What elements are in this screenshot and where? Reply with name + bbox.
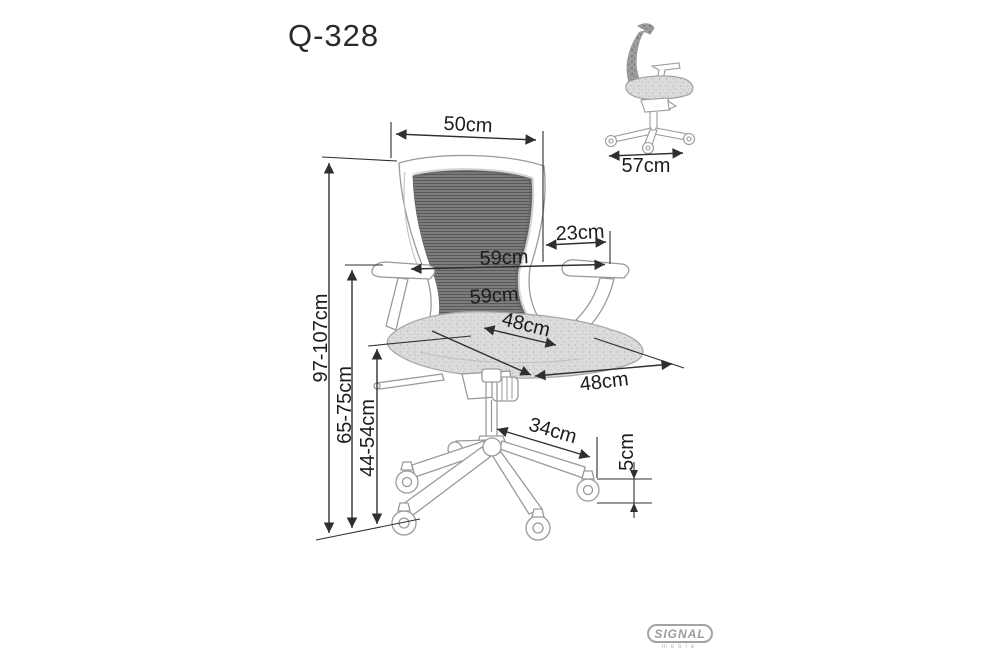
base-casters xyxy=(392,438,599,540)
label-caster-height: 5cm xyxy=(616,433,638,471)
label-total-height: 97-107cm xyxy=(310,294,332,383)
label-backrest-width: 50cm xyxy=(443,113,493,138)
diagram-canvas: Q-328 xyxy=(0,0,1000,666)
label-overall-width: 59cm xyxy=(479,246,529,270)
tilt-lever xyxy=(374,374,444,389)
label-seat-depth: 48cm xyxy=(579,368,630,396)
main-chair-drawing xyxy=(372,155,643,540)
side-seat xyxy=(626,76,693,99)
side-view-drawing xyxy=(606,24,695,154)
label-seat-height: 44-54cm xyxy=(357,399,379,477)
label-side-depth: 57cm xyxy=(622,155,671,177)
brand-logo-subtext: meble xyxy=(645,644,715,650)
label-armrest-depth: 23cm xyxy=(555,221,605,246)
right-armrest xyxy=(562,260,629,326)
brand-logo: SIGNAL meble xyxy=(645,624,715,650)
label-base-spread: 34cm xyxy=(526,414,579,449)
label-armrest-height: 65-75cm xyxy=(334,366,356,444)
side-mechanism xyxy=(641,98,670,112)
brand-logo-text: SIGNAL xyxy=(654,628,705,640)
brand-logo-capsule: SIGNAL xyxy=(647,624,713,643)
chair-dimension-drawing: 50cm 23cm 59cm 59cm 48cm 48cm 97-107cm 6… xyxy=(0,0,1000,666)
label-overall-depth: 59cm xyxy=(469,283,519,308)
